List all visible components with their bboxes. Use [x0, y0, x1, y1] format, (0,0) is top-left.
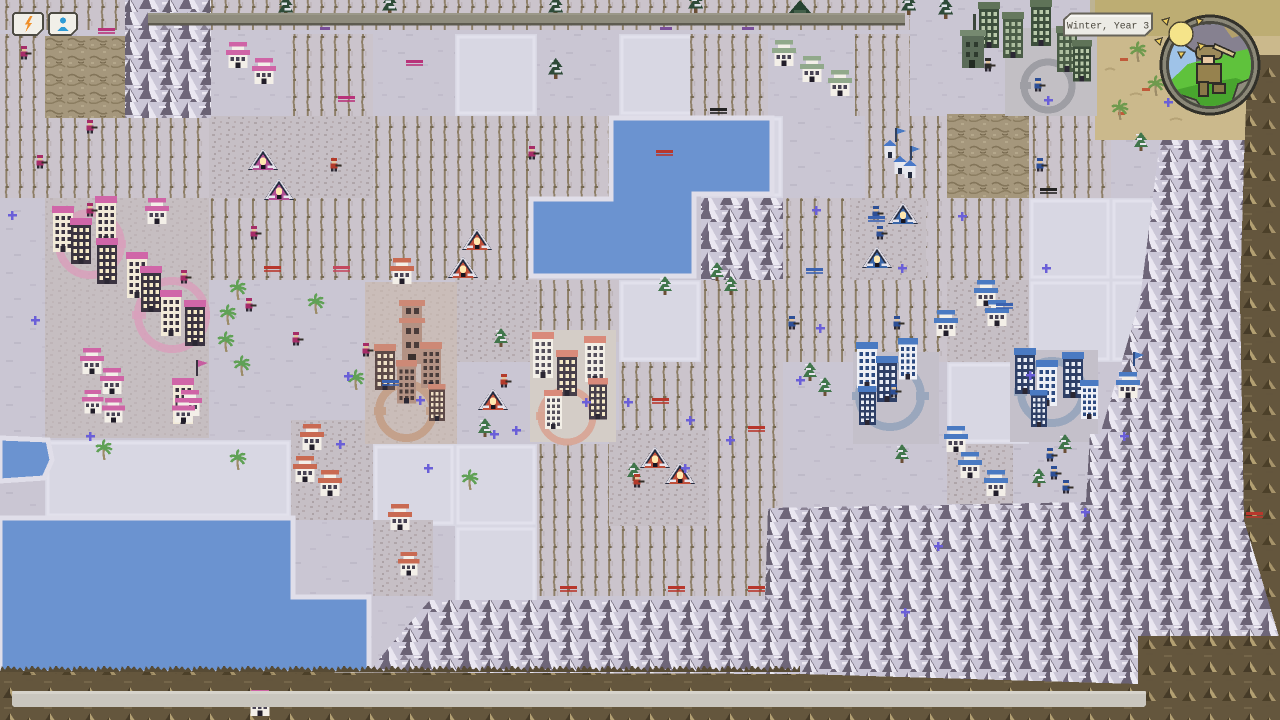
- svg-text:Winter, Year 3: Winter, Year 3: [1067, 21, 1149, 32]
